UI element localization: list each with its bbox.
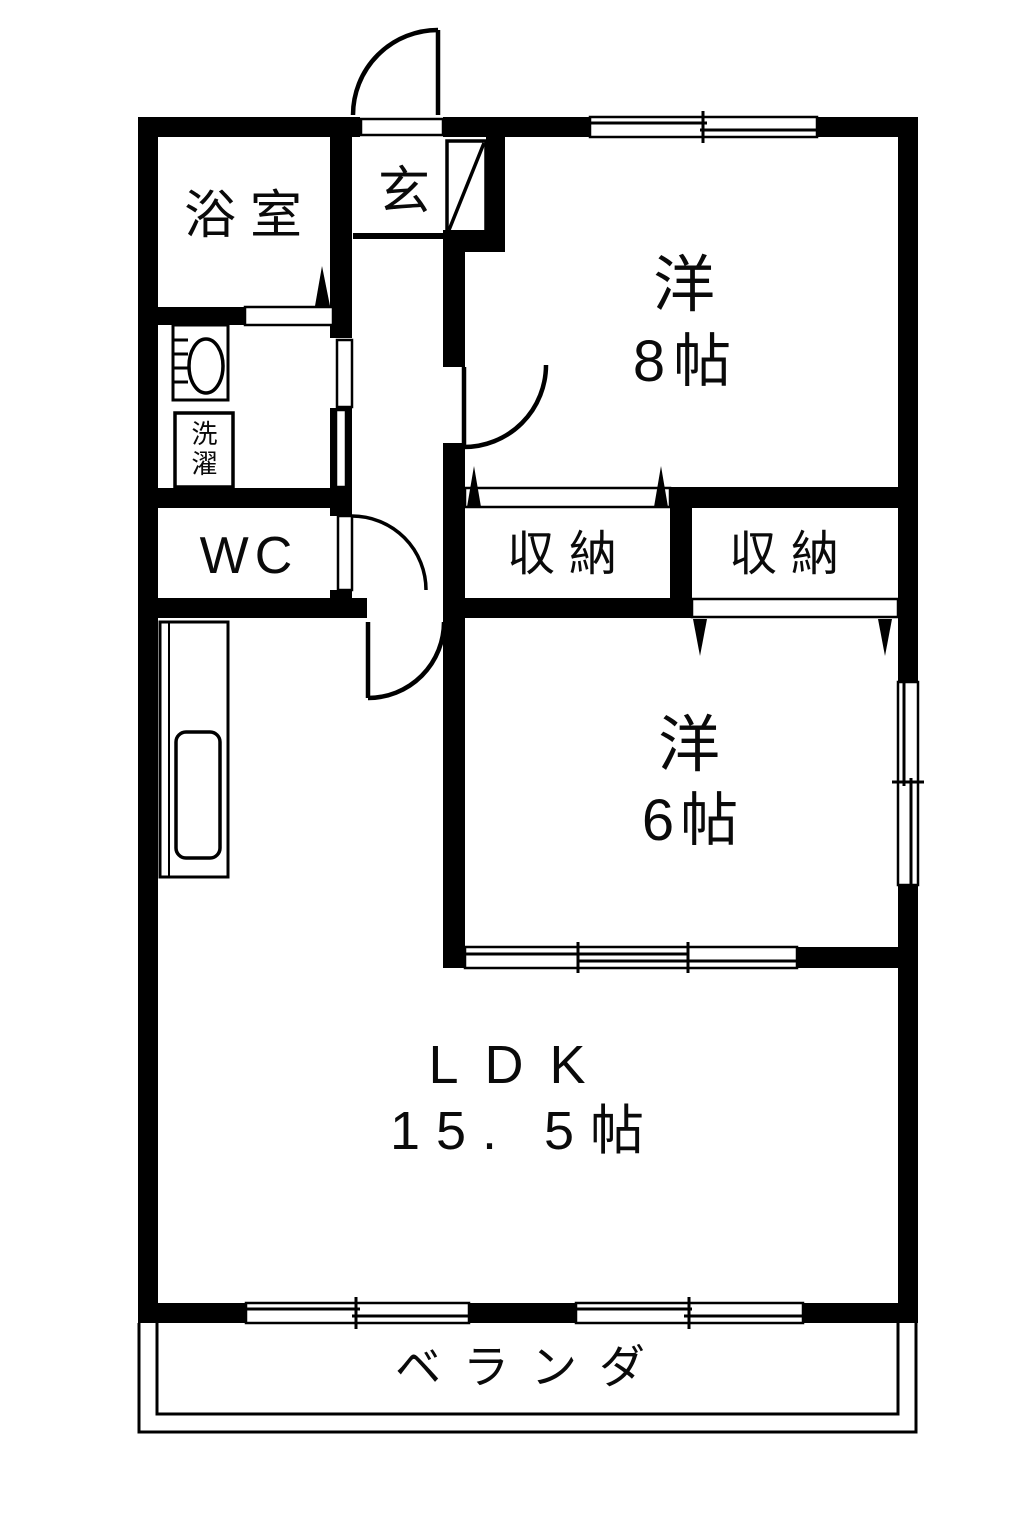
ldk-door	[368, 622, 444, 698]
shoe-cabinet	[447, 141, 486, 232]
closet1-door-marker-left	[467, 466, 481, 507]
closet2-threshold	[692, 599, 898, 617]
room-label-closet-2: 収納	[729, 531, 853, 579]
window-room8-top	[590, 111, 817, 143]
closet1-door-marker-right	[654, 466, 668, 507]
bath-door-marker	[315, 266, 330, 306]
door-markers	[315, 266, 892, 656]
window-room6-right	[892, 682, 924, 885]
sliding-door-room6-ldk	[465, 942, 797, 973]
closet2-door-marker-right	[878, 619, 892, 656]
closet1-threshold	[465, 488, 670, 507]
room-label-ldk-size: 15. 5帖	[390, 1104, 660, 1158]
room-label-laundry: 洗濯	[190, 420, 216, 480]
room-label-ldk-name: LDK	[428, 1038, 611, 1092]
fixtures	[160, 141, 486, 877]
kitchen-counter	[160, 622, 228, 877]
room-label-bath: 浴室	[184, 190, 316, 242]
bath-threshold	[245, 307, 333, 325]
room-label-western6-size: 6帖	[642, 792, 744, 850]
closet2-door-marker-left	[693, 619, 707, 656]
room8-door	[464, 365, 546, 447]
room-label-western6-name: 洋	[658, 715, 720, 777]
room-label-entrance: 玄	[378, 166, 430, 218]
entrance-sill	[361, 119, 443, 135]
room-label-western8-size: 8帖	[633, 333, 739, 391]
room-label-veranda: ベランダ	[395, 1344, 667, 1390]
window-ldk-bottom-right	[576, 1297, 803, 1329]
floorplan-drawing	[0, 0, 1024, 1536]
wash-basin	[173, 325, 228, 400]
entrance-door	[353, 30, 438, 115]
room-label-closet-1: 収納	[507, 531, 631, 579]
room-label-wc: WC	[200, 530, 299, 582]
window-ldk-bottom-left	[246, 1297, 469, 1329]
floorplan-page: 浴室 玄 洋 8帖 WC 洗濯 収納 収納 洋 6帖 LDK 15. 5帖 ベラ…	[0, 0, 1024, 1536]
room-label-western8-name: 洋	[653, 255, 715, 317]
wc-door	[338, 516, 426, 590]
